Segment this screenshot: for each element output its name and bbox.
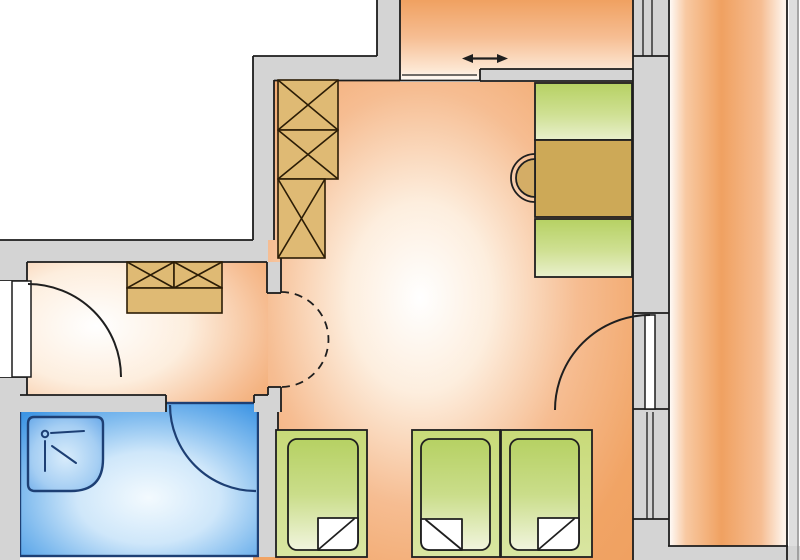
- balcony-floor: [668, 0, 787, 546]
- shower: [28, 417, 103, 491]
- bed-3: [501, 430, 592, 557]
- entrance-door-leaf: [12, 281, 31, 377]
- bed-1: [276, 430, 367, 557]
- desk: [535, 83, 632, 277]
- desk-shelf-bottom: [535, 219, 632, 277]
- cabinet: [127, 262, 222, 313]
- balcony-door-leaf: [645, 315, 655, 409]
- bed-2: [412, 430, 500, 557]
- floor-plan: [0, 0, 800, 560]
- desk-shelf-top: [535, 83, 632, 140]
- desk-worktop: [535, 140, 632, 217]
